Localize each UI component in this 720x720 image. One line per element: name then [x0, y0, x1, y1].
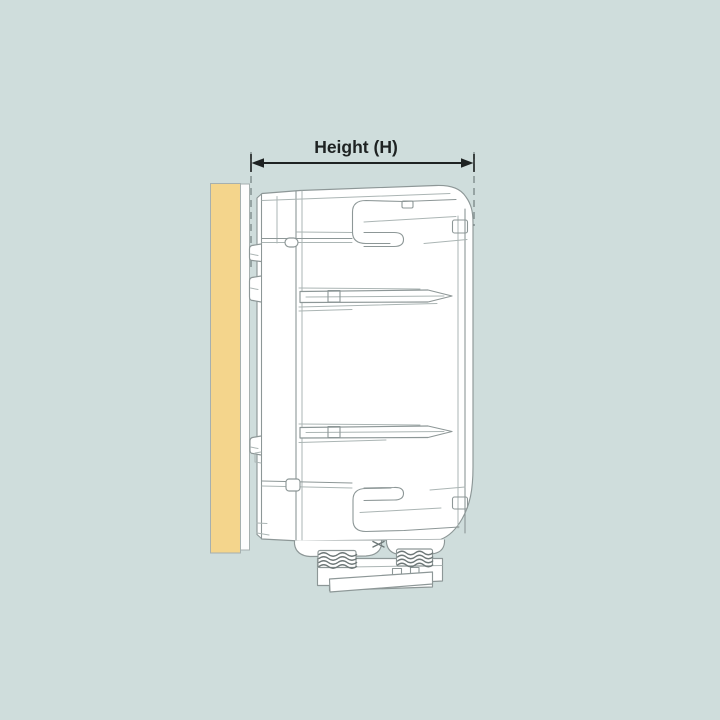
arrowhead-right-icon [461, 158, 474, 168]
wall-surface-strip [241, 184, 250, 550]
vibration-isolator-left [318, 551, 357, 569]
clip-detail [286, 479, 300, 491]
arrowhead-left-icon [252, 158, 265, 168]
technical-diagram: Height (H) [0, 0, 720, 720]
base-mount [295, 540, 445, 593]
wall-panel [211, 184, 241, 554]
diagram-canvas: Height (H) [0, 0, 720, 720]
clip-detail [285, 238, 298, 247]
dimension-label: Height (H) [314, 137, 398, 157]
mounting-hook [250, 244, 262, 262]
vibration-isolator-right [397, 549, 433, 567]
wall [211, 184, 250, 554]
unit-side-view [250, 185, 474, 592]
